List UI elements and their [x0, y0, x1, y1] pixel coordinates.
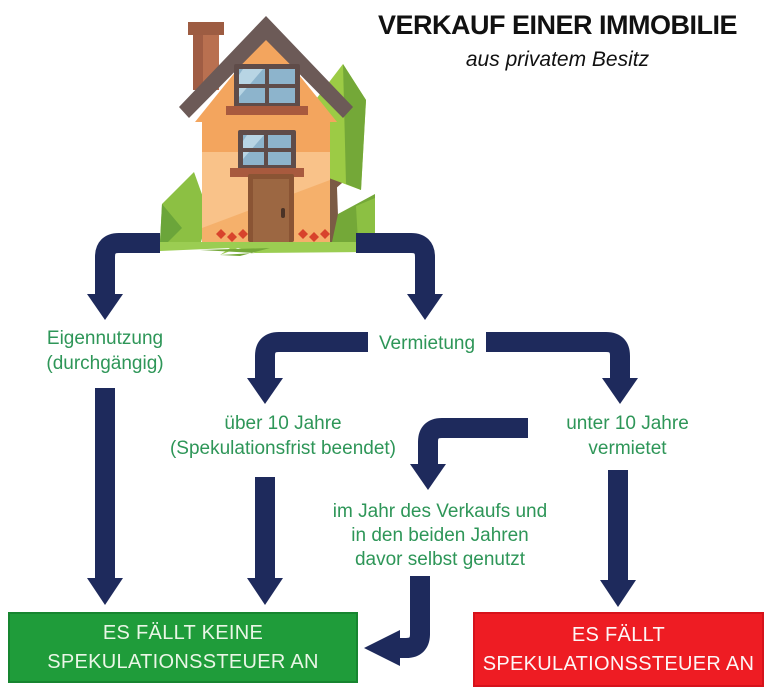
page-subtitle: aus privatem Besitz: [350, 48, 765, 72]
arrow-unter10-to-selbstgenutzt: [410, 428, 528, 490]
arrow-vermietung-to-unter10: [486, 342, 638, 404]
lower-window: [230, 130, 304, 177]
arrow-unter10-to-tax: [600, 470, 636, 607]
door: [248, 174, 294, 242]
bush-left: [160, 172, 209, 242]
grass: [160, 242, 375, 256]
arrow-ueber10-to-no-tax: [247, 477, 283, 605]
label-selbst-genutzt: im Jahr des Verkaufs und in den beiden J…: [322, 500, 558, 572]
outcome-speculation-tax: ES FÄLLT SPEKULATIONSSTEUER AN: [473, 612, 764, 687]
arrow-selbstgenutzt-to-no-tax: [364, 576, 420, 666]
page-title: VERKAUF EINER IMMOBILIE: [350, 10, 765, 41]
label-eigennutzung: Eigennutzung (durchgängig): [15, 326, 195, 376]
upper-window: [226, 64, 308, 115]
label-ueber-10-jahre: über 10 Jahre (Spekulationsfrist beendet…: [168, 411, 398, 461]
label-unter-10-jahre: unter 10 Jahre vermietet: [545, 411, 710, 461]
infographic-canvas: VERKAUF EINER IMMOBILIE aus privatem Bes…: [0, 0, 772, 700]
outcome-no-speculation-tax: ES FÄLLT KEINE SPEKULATIONSSTEUER AN: [8, 612, 358, 683]
house-illustration: [160, 12, 375, 257]
arrow-house-to-eigennutzung: [87, 243, 160, 320]
label-vermietung: Vermietung: [367, 331, 487, 356]
arrow-vermietung-to-ueber10: [247, 342, 368, 404]
arrow-eigennutzung-to-no-tax: [87, 388, 123, 605]
bush-right: [332, 194, 375, 242]
